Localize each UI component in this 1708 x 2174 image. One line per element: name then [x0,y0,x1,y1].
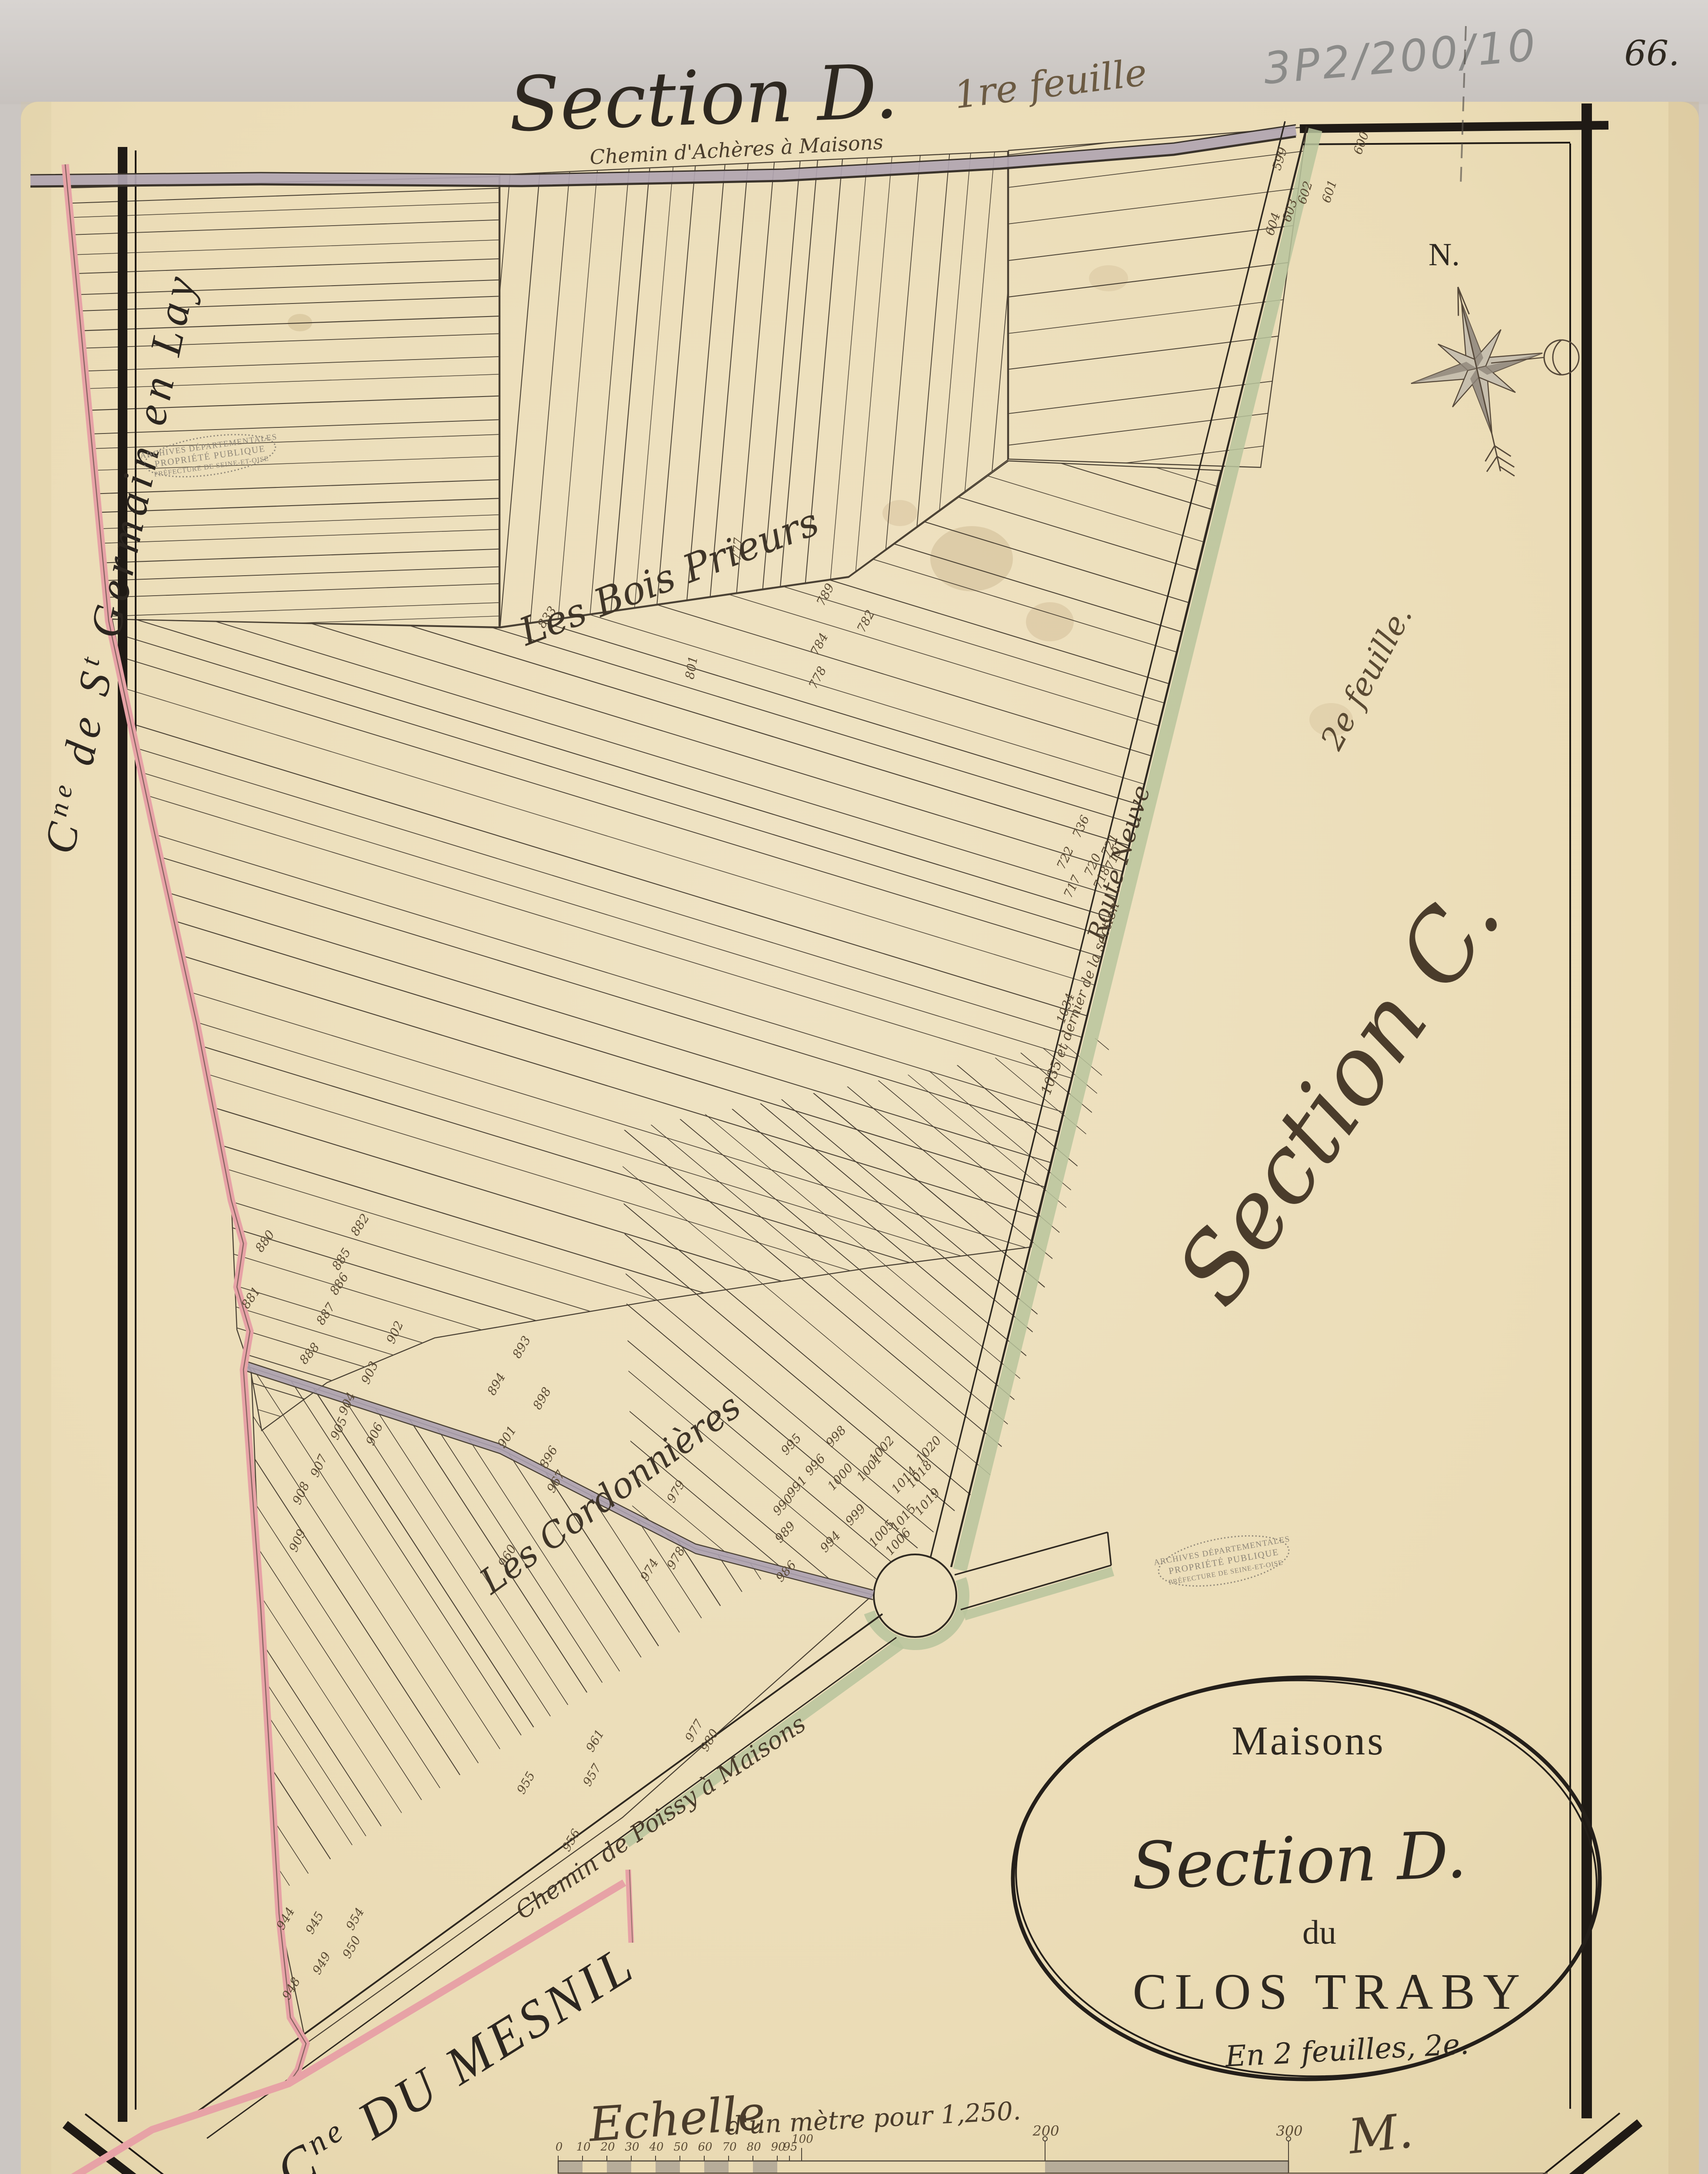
scale-tick-label: 10 [576,2141,590,2154]
scale-tick-label: 70 [722,2141,736,2154]
scale-tick-label: 100 [792,2133,813,2146]
scale-tick-label: 80 [746,2141,761,2154]
scale-tick-label: 300 [1276,2123,1302,2139]
scale-tick-label: 60 [698,2141,712,2154]
scale-tick-label: 20 [600,2141,615,2154]
compass-north-label: N. [1428,237,1460,273]
cartouche-joiner: du [1302,1913,1336,1951]
scale-tick-label: 0 [556,2141,563,2154]
cartouche-name: CLOS TRABY [1133,1963,1528,2020]
folio-number: 66. [1624,33,1679,73]
scale-tick-label: 40 [649,2141,663,2154]
scale-tick-label: 200 [1032,2123,1059,2139]
scale-tick-label: 30 [625,2141,639,2154]
cartouche-commune: Maisons [1232,1718,1385,1764]
scale-tick-label: 50 [673,2141,688,2154]
cartouche-section: Section D. [1130,1817,1468,1904]
surveyor-signature: M. [1345,2103,1415,2165]
scanned-map-photo: 5996006016026036047177187197207217227361… [0,0,1708,2174]
